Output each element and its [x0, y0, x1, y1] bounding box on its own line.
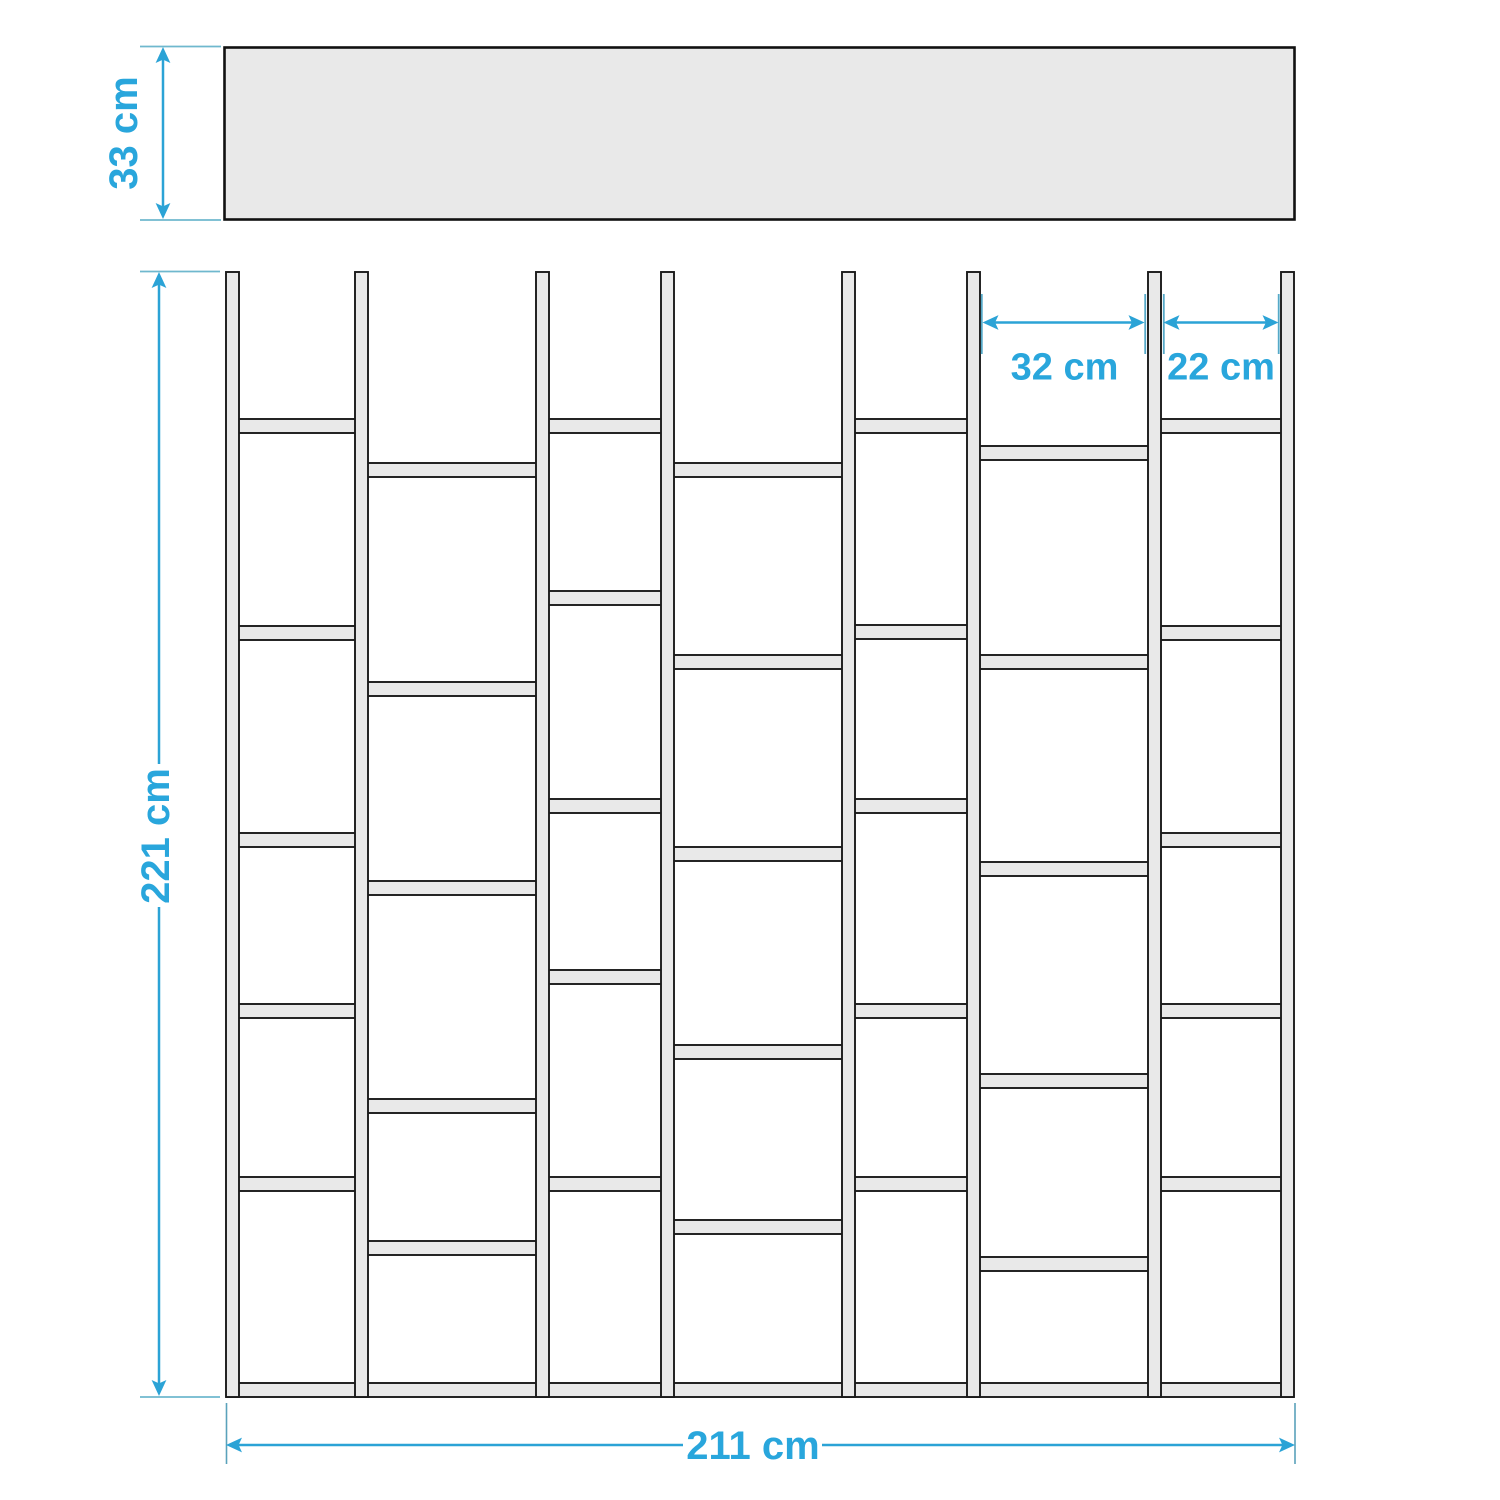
- svg-text:33 cm: 33 cm: [102, 76, 146, 189]
- svg-text:32 cm: 32 cm: [1011, 346, 1119, 388]
- svg-text:211 cm: 211 cm: [686, 1424, 819, 1468]
- svg-text:221 cm: 221 cm: [134, 768, 178, 904]
- svg-text:22 cm: 22 cm: [1167, 346, 1275, 388]
